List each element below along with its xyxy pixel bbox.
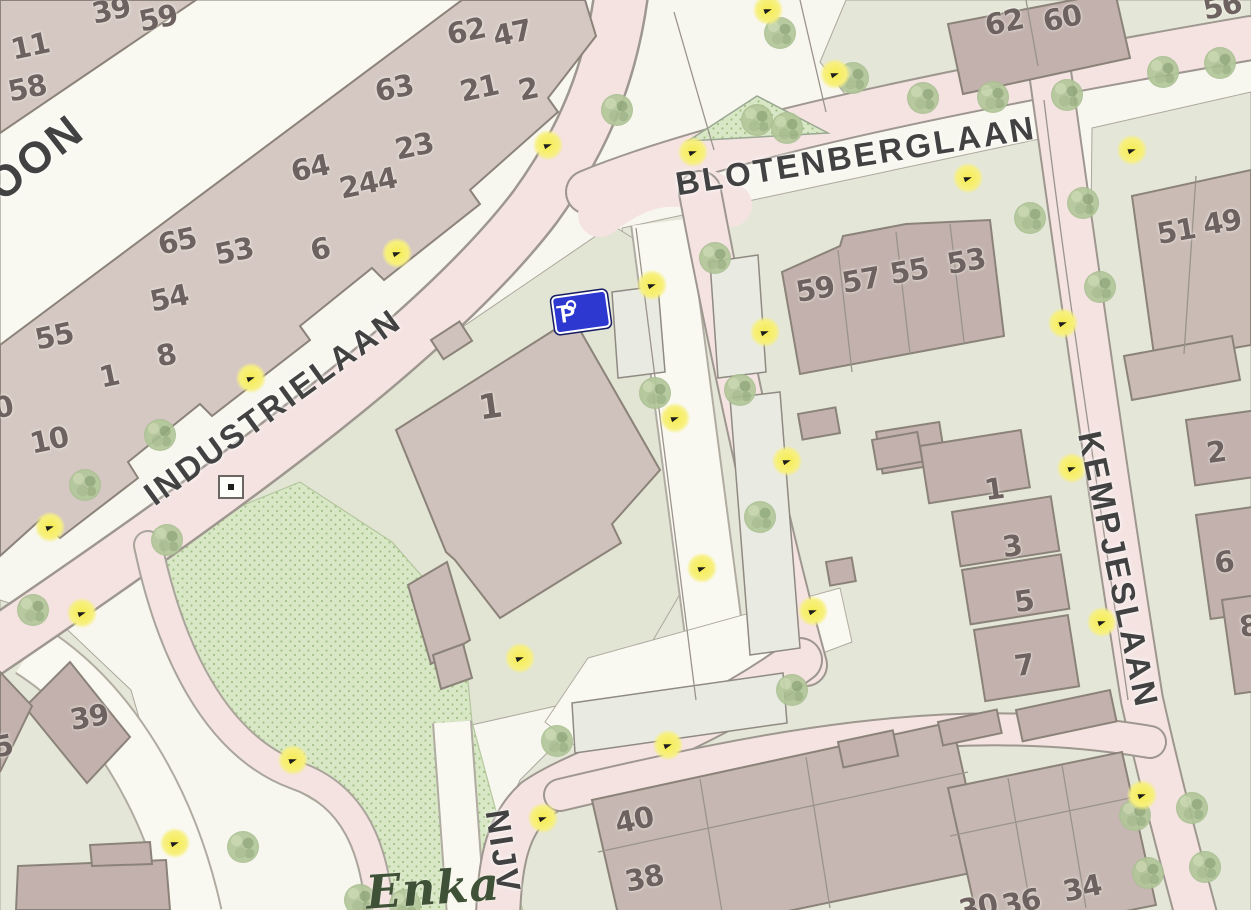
streetlight-icon [637,270,667,300]
streetlight-icon [820,59,850,89]
tree-icon [1132,857,1164,889]
parking-sign-icon: P [551,289,612,334]
map-canvas[interactable]: 1158395962476321223642446553654558101013… [0,0,1251,910]
tree-icon [741,104,773,136]
streetlight-icon [1117,135,1147,165]
streetlight-icon [1048,308,1078,338]
streetlight-icon [35,512,65,542]
house-number-label: 57 [839,260,883,300]
house-number-label: 59 [793,269,837,309]
tree-icon [907,82,939,114]
streetlight-icon [528,803,558,833]
streetlight-icon [67,598,97,628]
place-name-label: Enka [364,856,502,910]
house-number-label: 1 [476,386,504,429]
tree-icon [151,524,183,556]
road-symbol-square [219,476,243,498]
streetlight-icon [750,317,780,347]
streetlight-icon [533,130,563,160]
tree-icon [144,419,176,451]
streetlight-icon [382,238,412,268]
tree-icon [1189,851,1221,883]
streetlight-icon [653,730,683,760]
tree-icon [639,377,671,409]
streetlight-icon [687,553,717,583]
streetlight-icon [660,403,690,433]
tree-icon [601,94,633,126]
tree-icon [744,501,776,533]
streetlight-icon [505,643,535,673]
streetlight-icon [160,828,190,858]
trailer-icon [553,295,579,316]
tree-icon [1014,202,1046,234]
tree-icon [724,374,756,406]
tree-icon [776,674,808,706]
streetlight-icon [278,745,308,775]
house-number-label: 51 [1154,211,1198,251]
streetlight-icon [772,446,802,476]
streetlight-icon [953,163,983,193]
tree-icon [1204,47,1236,79]
tree-icon [1051,79,1083,111]
tree-icon [1176,792,1208,824]
house-number-label: 53 [944,241,988,281]
tree-icon [541,725,573,757]
streetlight-icon [1127,780,1157,810]
house-number-label: 49 [1200,202,1244,242]
house-number-label: 55 [887,251,931,291]
tree-icon [17,594,49,626]
tree-icon [1147,56,1179,88]
tree-icon [977,81,1009,113]
tree-icon [699,242,731,274]
streetlight-icon [798,596,828,626]
tree-icon [1067,187,1099,219]
tree-icon [771,112,803,144]
tree-icon [1084,271,1116,303]
streetlight-icon [236,363,266,393]
house-number-label: 39 [67,697,111,737]
tree-icon [227,831,259,863]
tree-icon [69,469,101,501]
